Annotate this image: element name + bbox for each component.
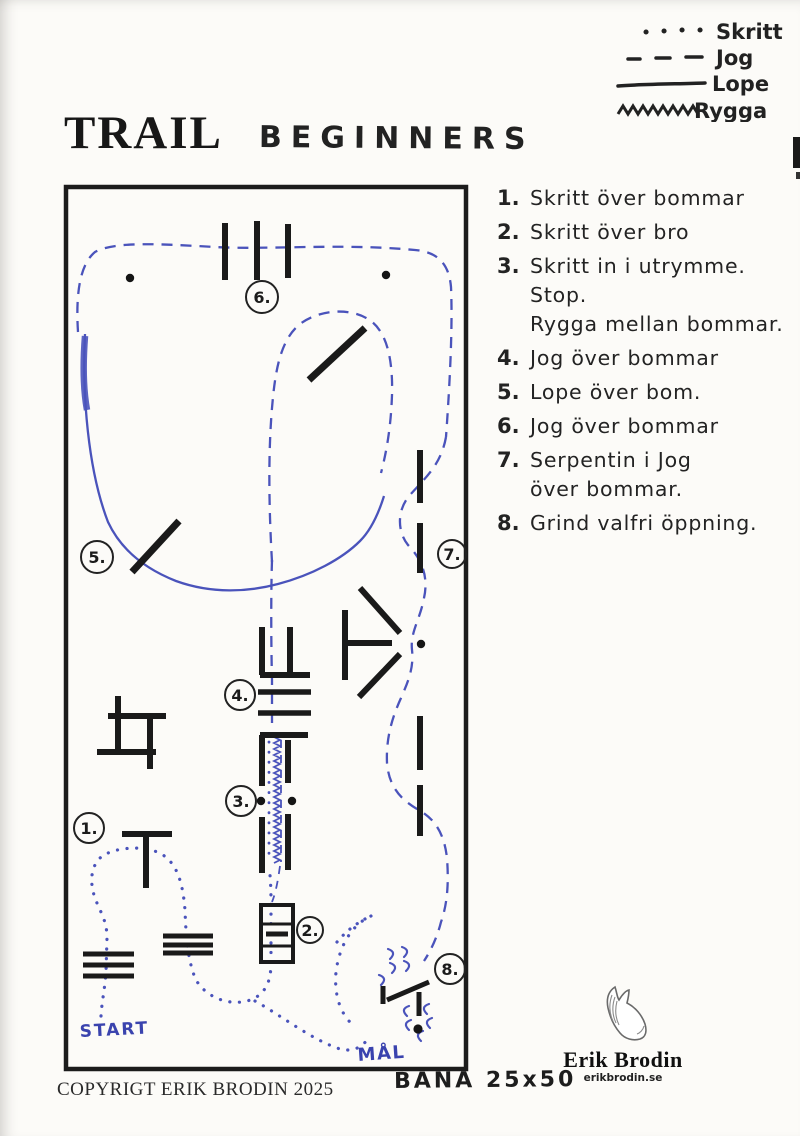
instruction-6: 6. Jog över bommar [497,412,799,441]
corner-obstacle [97,696,166,769]
number-circle-6: 6. [246,281,278,313]
fan-obstacle [345,588,400,697]
cavaletti-left [83,954,134,976]
number-circle-1: 1. [74,813,104,843]
svg-text:2.: 2. [301,921,318,940]
instruction-5: 5. Lope över bom. [497,378,799,407]
jog-path-serpentine [387,437,448,961]
scan-edge-artifact [793,137,800,168]
copyright-text: COPYRIGT ERIK BRODIN 2025 [57,1079,334,1101]
obstacle-4-bars [258,692,311,713]
t-obstacle [122,834,172,888]
instruction-4-number: 4. [497,344,530,373]
instruction-8-text: Grind valfri öppning. [530,511,757,535]
legend-label-skritt: Skritt [716,20,783,44]
skritt-path-gate-loop [336,916,371,1026]
instruction-3-number: 3. [497,252,530,339]
gait-legend: Skritt Jog Lope Rygga [598,10,798,122]
obstacle-6-bars [225,221,288,280]
lope-path-thick-blob [84,336,87,410]
logo-name: Erik Brodin [558,1047,688,1073]
obstacle-3-corridor [260,735,308,873]
instruction-6-number: 6. [497,412,530,441]
jog-path-outer-loop [77,244,451,437]
dashed-line-icon [628,57,702,59]
erik-brodin-logo: Erik Brodin erikbrodin.se [558,985,688,1084]
instruction-3-text-line1: Skritt in i utrymme. [530,252,799,281]
number-circle-5: 5. [81,541,113,573]
instruction-8: 8. Grind valfri öppning. [497,509,799,538]
number-circle-7: 7. [438,540,466,568]
svg-text:1.: 1. [80,819,97,838]
scanned-trail-course-page: TRAIL BEGINNERS Skritt Jog Lope Rygga 1.… [0,0,800,1136]
arena-border [66,187,466,1069]
zigzag-line-icon [618,106,698,114]
page-subtitle: BEGINNERS [259,120,535,157]
instruction-4: 4. Jog över bommar [497,344,799,373]
gate-obstacle [383,982,429,1016]
instruction-2: 2. Skritt över bro [497,218,799,247]
instruction-2-number: 2. [497,218,530,247]
svg-text:5.: 5. [88,548,105,567]
jog-path-teardrop [269,312,392,562]
page-title: TRAIL [64,106,223,160]
instruction-5-number: 5. [497,378,530,407]
instruction-4-text: Jog över bommar [530,346,719,370]
goal-dot [413,1024,422,1033]
instruction-1-number: 1. [497,184,530,213]
top-diagonal-bom [309,328,365,380]
instruction-1: 1. Skritt över bommar [497,184,799,213]
instruction-5-text: Lope över bom. [530,380,701,404]
scan-edge-artifact-small [796,172,800,179]
instruction-3-text-line2: Stop. [530,281,799,310]
course-map: 6. 5. 7. 4. 3. 1. 2. 8. [55,180,485,1085]
instruction-6-text: Jog över bommar [530,414,719,438]
skritt-path-to-goal [255,1001,367,1050]
legend-label-jog: Jog [714,46,753,70]
obstacle-instruction-list: 1. Skritt över bommar 2. Skritt över bro… [497,184,799,543]
dotted-line-icon [646,30,700,32]
solid-line-icon [618,83,705,86]
instruction-3: 3. Skritt in i utrymme. Stop. Rygga mell… [497,252,799,339]
logo-website: erikbrodin.se [558,1072,688,1084]
instruction-7-number: 7. [497,446,530,504]
svg-text:7.: 7. [443,545,460,564]
instruction-2-text: Skritt över bro [530,220,689,244]
number-circle-4: 4. [225,680,255,710]
legend-label-lope: Lope [712,72,769,96]
bridge-obstacle [261,905,293,962]
svg-text:3.: 3. [232,792,249,811]
number-circle-2: 2. [297,917,323,943]
goal-label: MÅL [357,1040,406,1066]
number-circle-8: 8. [435,954,465,984]
instruction-1-text: Skritt över bommar [530,186,745,210]
lope-path [84,334,384,590]
horse-head-icon [591,985,655,1047]
instruction-7: 7. Serpentin i Jog över bommar. [497,446,799,504]
skritt-path-main [92,848,271,1016]
instruction-8-number: 8. [497,509,530,538]
start-label: START [79,1018,150,1042]
cavaletti-right [163,936,213,953]
legend-label-rygga: Rygga [694,99,767,122]
instruction-7-text-line1: Serpentin i Jog [530,446,799,475]
page-title-row: TRAIL BEGINNERS [64,106,534,160]
utrymme-box [260,627,310,675]
instruction-7-text-line2: över bommar. [530,475,799,504]
arena-size-label: BANA 25x50 [394,1067,577,1094]
number-circle-3: 3. [226,786,256,816]
svg-text:4.: 4. [231,686,248,705]
svg-text:8.: 8. [441,960,458,979]
rygga-zigzag [274,737,280,863]
svg-text:6.: 6. [253,288,270,307]
obstacle-5-bom [132,521,179,572]
instruction-3-text-line3: Rygga mellan bommar. [530,310,799,339]
